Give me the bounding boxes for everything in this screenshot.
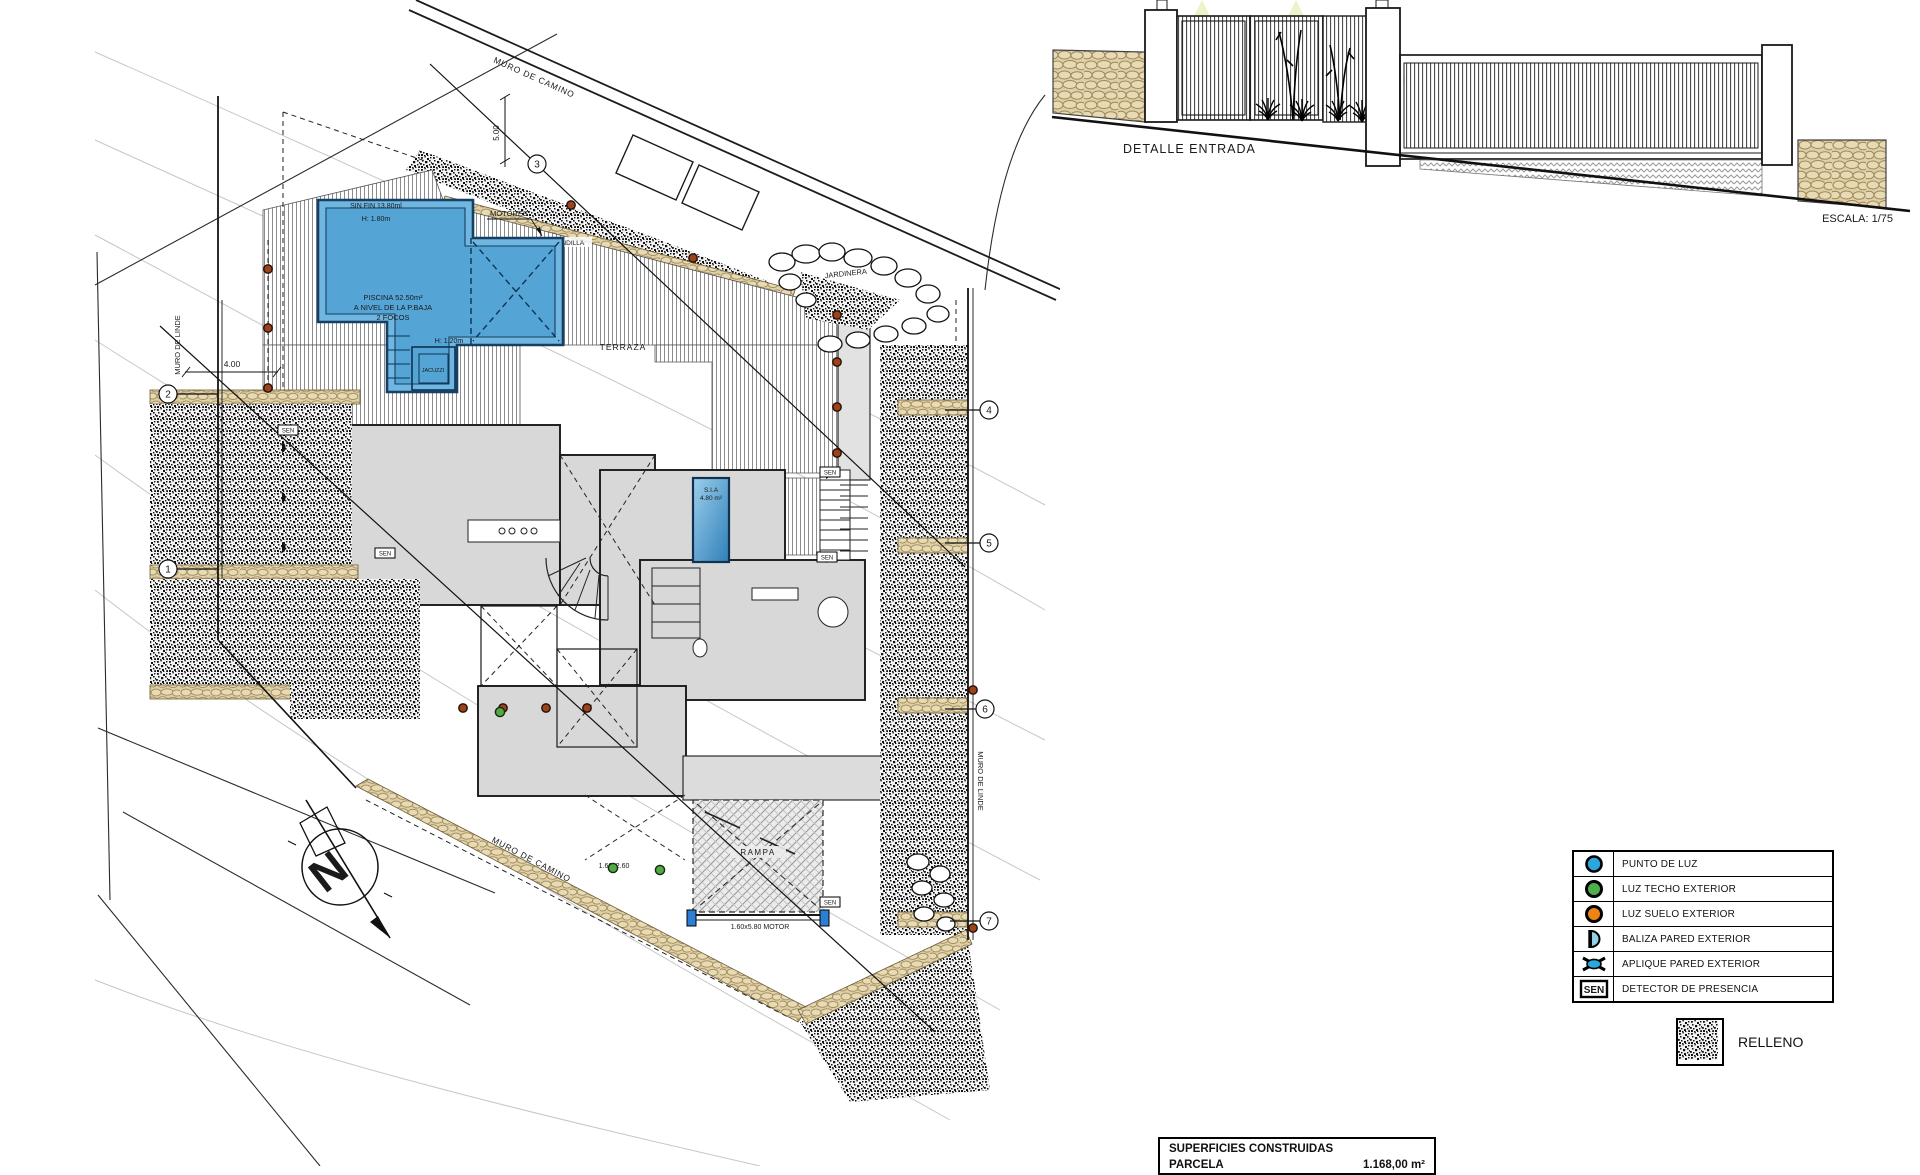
gate-pillar-left: [1145, 0, 1177, 122]
legend-label: BALIZA PARED EXTERIOR: [1614, 934, 1832, 945]
detector-presencia-icon: SEN: [1574, 977, 1614, 1001]
stone-wall-right: [1798, 140, 1886, 208]
surfaces-row-value: 1.168,00 m²: [1363, 1159, 1425, 1171]
entrance-detail: DETALLE ENTRADA ESCALA: 1/75: [1050, 0, 1920, 240]
axis-marker-6: 6: [976, 700, 994, 718]
dim-400-label: 4.00: [224, 359, 241, 369]
axis-marker-2: 2: [159, 385, 177, 403]
perimeter-fence: [1400, 55, 1762, 159]
escala-label: ESCALA: 1/75: [1822, 213, 1893, 225]
pool-h180-label: H: 1.80m: [362, 216, 391, 223]
pool-level-label: A NIVEL DE LA P.BAJA: [354, 303, 432, 312]
relleno-legend: RELLENO: [1676, 1018, 1803, 1066]
site-plan: SEN MURO DE CAMINO TERRAZA BARANDIL: [0, 0, 1060, 1166]
pool-name-label: PISCINA 52.50m²: [363, 293, 423, 302]
spa-pool: S.I.A 4.80 m²: [693, 478, 729, 562]
motor-gate-dim-label: 1.60x5.80 MOTOR: [731, 924, 790, 931]
svg-text:7: 7: [986, 917, 992, 928]
svg-text:3: 3: [534, 160, 540, 171]
legend-row: LUZ SUELO EXTERIOR: [1574, 901, 1832, 926]
paving-herringbone: [1420, 160, 1762, 196]
right-relleno-zone: [880, 345, 968, 935]
luz-techo-exterior-icon: [1574, 877, 1614, 901]
surfaces-row: PARCELA 1.168,00 m²: [1160, 1157, 1434, 1173]
dim-500-label: 5.00: [492, 125, 501, 141]
surfaces-table: SUPERFICIES CONSTRUIDAS PARCELA 1.168,00…: [1158, 1137, 1436, 1175]
svg-text:4: 4: [986, 406, 992, 417]
legend-row: LUZ TECHO EXTERIOR: [1574, 876, 1832, 901]
detalle-entrada-title: DETALLE ENTRADA: [1123, 142, 1256, 156]
legend-row: PUNTO DE LUZ: [1574, 852, 1832, 876]
axis-marker-7: 7: [980, 912, 998, 930]
north-compass: N: [288, 800, 392, 938]
driveway-entrance-plan: [616, 135, 759, 230]
pool-sinfin-label: SIN FIN 13.80ml: [350, 203, 402, 210]
spa-name-label: S.I.A: [704, 487, 719, 494]
spa-area-label: 4.80 m²: [700, 495, 723, 502]
legend-label: PUNTO DE LUZ: [1614, 859, 1832, 870]
aplique-pared-exterior-icon: [1574, 952, 1614, 976]
north-letter: N: [299, 841, 357, 902]
svg-text:5: 5: [986, 539, 992, 550]
stone-wall-left: [1053, 50, 1145, 122]
sen-symbol-text: SEN: [1583, 985, 1604, 996]
legend-row: BALIZA PARED EXTERIOR: [1574, 926, 1832, 951]
muro-de-camino-top-label: MURO DE CAMINO: [492, 55, 576, 100]
ramp: RAMPA 1.60x5.80 MOTOR: [687, 800, 829, 931]
jardinera-label: JARDINERA: [824, 267, 867, 280]
svg-text:6: 6: [982, 705, 988, 716]
motores-label: MOTORES: [490, 209, 528, 218]
pool-h120-label: H: 1.20m: [435, 338, 464, 345]
muro-de-linde-right-label: MURO DE LINDE: [976, 751, 985, 811]
svg-text:2: 2: [165, 390, 171, 401]
gate-pillar-middle: [1366, 0, 1400, 166]
pedestrian-gate: 1.60x2.60: [585, 795, 685, 870]
relleno-swatch: [1676, 1018, 1724, 1066]
rampa-label: RAMPA: [740, 848, 775, 857]
relleno-label: RELLENO: [1738, 1034, 1803, 1050]
axis-marker-5: 5: [980, 534, 998, 552]
baliza-pared-exterior-icon: [1574, 927, 1614, 951]
terraza-label: TERRAZA: [600, 342, 647, 352]
luz-suelo-exterior-icon: [1574, 902, 1614, 926]
jacuzzi-label: JACUZZI: [422, 368, 445, 374]
legend-label: LUZ SUELO EXTERIOR: [1614, 909, 1832, 920]
muro-de-linde-left-label: MURO DE LINDE: [173, 315, 182, 375]
pool-focos-label: 2 FOCOS: [377, 313, 410, 322]
legend-label: DETECTOR DE PRESENCIA: [1614, 984, 1832, 995]
surfaces-header: SUPERFICIES CONSTRUIDAS: [1160, 1139, 1434, 1157]
punto-de-luz-icon: [1574, 852, 1614, 876]
axis-marker-1: 1: [159, 560, 177, 578]
axis-marker-3: 3: [528, 155, 546, 173]
fence-pillar-right: [1762, 45, 1792, 165]
surfaces-row-name: PARCELA: [1169, 1159, 1224, 1171]
svg-text:1: 1: [165, 565, 171, 576]
legend-label: APLIQUE PARED EXTERIOR: [1614, 959, 1832, 970]
lighting-legend: PUNTO DE LUZ LUZ TECHO EXTERIOR LUZ SUEL…: [1572, 850, 1834, 1003]
legend-row: SEN DETECTOR DE PRESENCIA: [1574, 976, 1832, 1001]
legend-label: LUZ TECHO EXTERIOR: [1614, 884, 1832, 895]
axis-marker-4: 4: [980, 401, 998, 419]
legend-row: APLIQUE PARED EXTERIOR: [1574, 951, 1832, 976]
